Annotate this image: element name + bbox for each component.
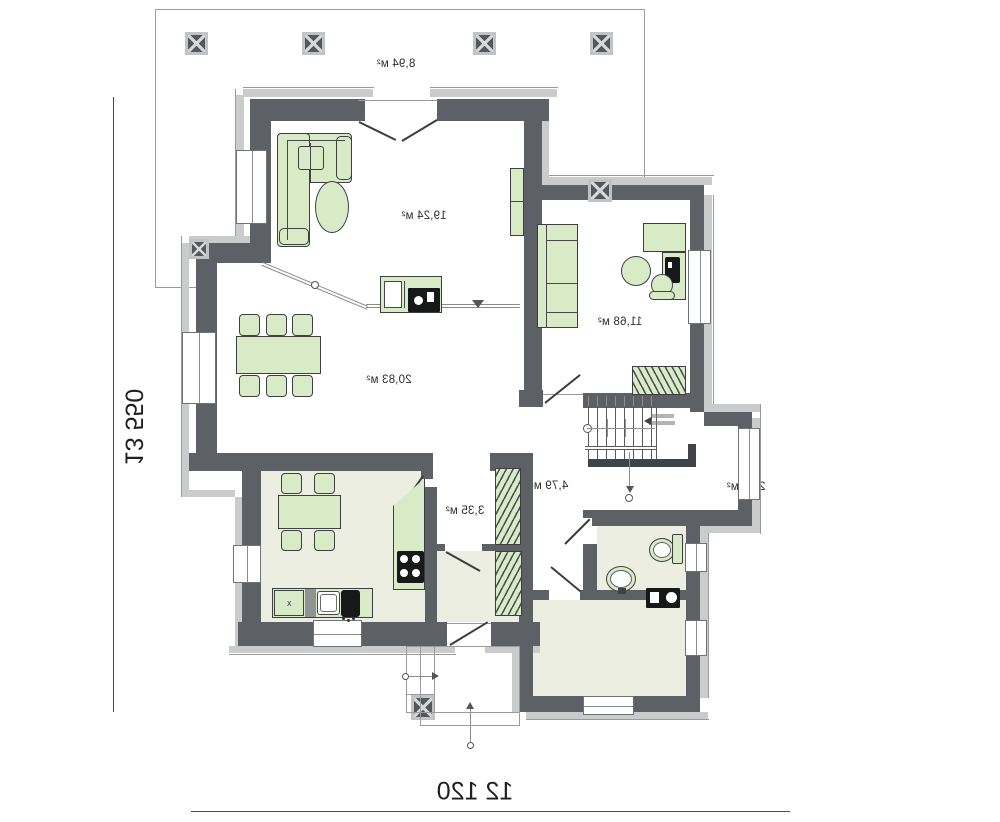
window-mullion	[700, 251, 701, 323]
stair-tick	[588, 396, 589, 406]
column-icon	[590, 32, 613, 55]
island-sink	[384, 281, 402, 308]
stair-landing-line	[585, 446, 657, 447]
outline-thin-line	[526, 719, 709, 720]
door-leaf	[359, 121, 397, 141]
monitor-detail	[668, 262, 672, 268]
desk-chair-back	[649, 291, 675, 300]
sofa	[298, 146, 324, 170]
window	[685, 543, 707, 572]
desk	[643, 223, 686, 252]
radiator-line	[510, 201, 524, 202]
stair-tread	[597, 408, 598, 446]
wall	[189, 453, 402, 471]
wall-insulation	[712, 404, 760, 412]
wall	[533, 590, 549, 600]
door-leaf	[544, 374, 580, 404]
terrace-area-label: 8,94 м²	[377, 58, 416, 70]
window	[236, 150, 267, 224]
sofa	[279, 228, 309, 245]
window-mullion	[584, 706, 633, 707]
radiator	[510, 168, 524, 236]
faucet-dot	[352, 617, 355, 620]
wall-insulation	[542, 177, 712, 185]
oven	[341, 590, 360, 617]
toilet-tank	[672, 534, 683, 564]
porch-arrow-icon	[466, 702, 474, 709]
island-detail	[427, 292, 434, 302]
stair-tick	[651, 396, 652, 406]
wall-insulation	[700, 526, 760, 533]
porch-arrow-icon	[432, 672, 439, 680]
window	[182, 332, 216, 404]
washer-door	[666, 592, 677, 603]
wall	[583, 544, 597, 590]
wall	[583, 510, 597, 518]
fridge	[305, 589, 316, 617]
stair-tread	[633, 408, 634, 446]
dining-chair	[266, 314, 287, 336]
stair-landing-line	[585, 449, 657, 450]
floor-plan: 8,94 м² 19,24 м² 20,83 м² 11,68 м² 9,92 …	[0, 0, 1000, 822]
window-mullion	[247, 546, 248, 582]
wall	[519, 390, 543, 407]
window	[738, 428, 760, 500]
faucet-dot	[347, 619, 350, 622]
door-leaf	[564, 519, 590, 545]
column-icon	[185, 32, 208, 55]
burner-icon	[400, 569, 408, 577]
sink-bowl	[320, 594, 337, 612]
wall	[437, 544, 445, 551]
porch-arrow-line	[408, 676, 434, 677]
stair-guide-line	[607, 419, 608, 437]
dimension-line	[113, 97, 114, 712]
sofa-line	[546, 312, 578, 313]
burner-icon	[400, 555, 408, 563]
stair-handrail	[588, 459, 696, 467]
stair-annotation	[652, 414, 674, 418]
door-leaf	[401, 119, 437, 142]
sofa-line	[287, 140, 345, 141]
stair-guide-line	[625, 419, 626, 437]
basin-tap	[618, 588, 626, 594]
porch-arrow-circle	[467, 742, 474, 749]
pantry-area-label: 3,35 м²	[446, 505, 485, 517]
dining-table	[236, 336, 321, 374]
toilet-bowl	[653, 542, 671, 558]
column-icon	[588, 179, 612, 202]
burner-icon	[412, 555, 420, 563]
dining-area-label: 20,83 м²	[366, 374, 411, 386]
kitchen-chair	[281, 530, 302, 551]
wall	[592, 510, 752, 526]
dining-chair	[239, 314, 260, 336]
window-mullion	[696, 544, 697, 571]
sofa-line	[287, 140, 288, 240]
stair-annotation-arrow-icon	[644, 417, 651, 425]
window-mullion	[199, 333, 200, 403]
stair-tick	[624, 396, 625, 406]
window	[685, 620, 707, 656]
dining-chair	[292, 375, 313, 397]
burner-icon	[412, 569, 420, 577]
outline-thin-line	[713, 195, 714, 407]
outline-thin-line	[708, 533, 709, 698]
stair-guide-line	[587, 428, 655, 429]
wall	[542, 185, 704, 200]
outline-thin-line	[155, 9, 645, 10]
door-leaf	[550, 566, 581, 592]
stair-tick	[606, 396, 607, 406]
kitchen-unit-x-label: x	[287, 598, 292, 608]
outline-thin-line	[542, 175, 714, 176]
dining-chair	[292, 314, 313, 336]
washbasin-bowl	[610, 570, 632, 588]
boundary-arrow-icon	[472, 300, 484, 308]
wall-insulation	[243, 89, 373, 97]
stair-tick	[642, 396, 643, 406]
kitchen-chair	[314, 473, 335, 494]
door-threshold	[543, 394, 583, 395]
living-area-label: 19,24 м²	[401, 210, 446, 222]
outline-thin-line	[644, 9, 645, 179]
wall	[425, 487, 437, 622]
wall	[482, 544, 533, 551]
outline-thin-line	[155, 9, 156, 288]
faucet-dot	[342, 617, 345, 620]
wall	[398, 453, 433, 471]
porch-arrow-circle	[402, 673, 409, 680]
island-cooktop	[408, 288, 440, 312]
stair-tread	[642, 408, 643, 446]
boundary-marker-circle	[311, 281, 319, 289]
sofa-line	[310, 143, 311, 183]
kitchen-unit-x-box: x	[274, 590, 304, 616]
kitchen-chair	[281, 473, 302, 494]
porch-step-line	[406, 694, 435, 695]
dining-chair	[266, 375, 287, 397]
outline-thin-line	[155, 287, 197, 288]
stair-annotation	[649, 421, 675, 425]
dining-chair	[239, 375, 260, 397]
window-mullion	[314, 634, 361, 635]
sofa	[336, 136, 352, 180]
window-mullion	[252, 151, 253, 223]
door-threshold	[358, 100, 438, 101]
window	[313, 620, 362, 647]
wardrobe-hatched	[495, 468, 521, 545]
round-table	[621, 256, 651, 286]
wall	[491, 622, 540, 646]
column-icon	[473, 32, 496, 55]
window	[688, 250, 711, 324]
kitchen-table	[278, 495, 341, 529]
washer-detail	[650, 592, 659, 603]
wall	[583, 393, 704, 408]
column-icon	[302, 32, 325, 55]
stair-tread	[615, 408, 616, 446]
kitchen-chair	[314, 530, 335, 551]
wardrobe-hatched	[632, 366, 686, 395]
outline-thin-line	[243, 87, 374, 88]
window	[583, 696, 634, 715]
sofa-line	[546, 240, 578, 241]
wall-insulation	[430, 89, 557, 97]
stair-tick	[633, 396, 634, 406]
window-mullion	[749, 429, 750, 499]
wall	[704, 412, 752, 426]
wardrobe-hatched	[495, 551, 522, 616]
stair-arrow-icon	[626, 486, 634, 493]
burner-icon	[414, 296, 423, 305]
window-mullion	[696, 621, 697, 655]
column-icon	[189, 239, 209, 259]
wall-insulation	[235, 497, 242, 545]
dimension-height-label: 13 550	[119, 389, 148, 465]
outline-thin-line	[430, 87, 558, 88]
door-leaf	[449, 621, 488, 646]
dimension-line	[191, 811, 790, 812]
bedroom-area-label: 11,68 м²	[598, 316, 642, 328]
stair-guide-line	[629, 452, 630, 490]
stair-tick	[615, 396, 616, 406]
porch-arrow-line	[470, 708, 471, 744]
stair-guide-circle	[625, 494, 633, 502]
wall-insulation	[182, 490, 235, 497]
coffee-table	[315, 181, 349, 233]
stair-handrail	[688, 444, 696, 460]
outline-thin-line	[760, 404, 761, 534]
utility-floor	[533, 600, 686, 696]
sofa-line	[546, 283, 578, 284]
island-line	[404, 281, 405, 308]
hall-area-label: 4,79 м²	[530, 480, 569, 492]
stair-tick	[597, 396, 598, 406]
dimension-width-label: 12 120	[437, 778, 513, 807]
window	[233, 545, 261, 583]
